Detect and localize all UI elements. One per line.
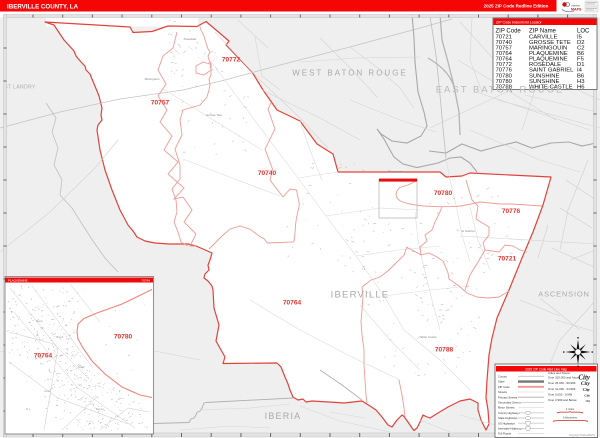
svg-text:Streets: Streets [498,390,507,394]
svg-text:County: County [498,375,507,379]
svg-text:70764: 70764 [283,300,302,307]
svg-text:State: State [498,380,505,384]
svg-text:Plaquemine: Plaquemine [388,170,404,174]
svg-text:70721: 70721 [498,256,517,263]
svg-text:H6: H6 [577,84,585,90]
svg-text:MAPS: MAPS [571,8,582,12]
svg-text:Over 25,000 - 99,999: Over 25,000 - 99,999 [548,381,576,385]
svg-text:US Highways: US Highways [498,421,515,425]
svg-text:Minor Streets: Minor Streets [498,406,515,410]
svg-text:Primary Streets: Primary Streets [498,395,518,399]
svg-text:State Highways: State Highways [498,416,518,420]
svg-text:Grosse Tete: Grosse Tete [206,113,222,117]
svg-text:70780: 70780 [114,334,133,341]
svg-text:IBERIA: IBERIA [265,411,302,421]
svg-text:Cities and Towns: Cities and Towns [548,371,570,375]
svg-text:70757: 70757 [151,100,170,107]
svg-text:Myrtle: Myrtle [78,366,85,369]
svg-text:White Castle: White Castle [419,335,436,339]
svg-text:WEST BATON ROUGE: WEST BATON ROUGE [292,69,408,78]
svg-text:70780: 70780 [434,190,453,197]
svg-text:PLAQUEMINE: PLAQUEMINE [8,279,28,283]
svg-text:Grove: Grove [44,390,51,393]
svg-text:St Gabriel: St Gabriel [461,229,475,233]
svg-text:EAST BATON ROUGE: EAST BATON ROUGE [436,84,565,95]
svg-text:Over 100,000 and Above: Over 100,000 and Above [548,376,580,380]
svg-text:ST LANDRY: ST LANDRY [4,85,36,91]
svg-text:St L: St L [26,408,31,411]
svg-text:ZIP Code: ZIP Code [498,385,510,389]
svg-text:Rosedale: Rosedale [184,37,197,41]
svg-text:6 kilometers: 6 kilometers [563,416,578,420]
svg-text:Bayou: Bayou [96,408,103,411]
svg-text:70776: 70776 [502,208,521,215]
svg-text:Plaq: Plaq [56,336,61,339]
svg-text:2025 ZIP Code Redline Edition: 2025 ZIP Code Redline Edition [484,4,549,9]
svg-text:IBERVILLE COUNTY, LA: IBERVILLE COUNTY, LA [7,3,79,10]
svg-text:Maringouin: Maringouin [145,77,160,81]
svg-text:City: City [583,387,590,392]
svg-text:4 miles: 4 miles [566,407,575,411]
svg-text:Copyright MarketMAPS: Copyright MarketMAPS [569,434,595,437]
svg-text:ZIP Code Index/Grid Locator: ZIP Code Index/Grid Locator [496,21,542,25]
svg-text:ASCENSION: ASCENSION [538,290,589,299]
svg-text:70772: 70772 [222,57,241,64]
svg-text:70764: 70764 [142,279,151,283]
svg-text:Over 10,000 - 24,999: Over 10,000 - 24,999 [548,387,576,391]
svg-text:70740: 70740 [258,170,277,177]
svg-text:City: City [584,393,590,397]
svg-text:County Highways: County Highways [498,411,520,415]
svg-text:Bayou: Bayou [36,320,43,323]
svg-text:Toll Roads: Toll Roads [498,432,512,436]
svg-text:70764: 70764 [34,353,53,360]
svg-text:70788: 70788 [435,347,454,354]
svg-text:Over 5,000 - 9,999: Over 5,000 - 9,999 [548,392,572,396]
svg-text:Over 2,999 and Below: Over 2,999 and Below [548,398,578,402]
svg-text:IBERVILLE: IBERVILLE [331,290,390,301]
